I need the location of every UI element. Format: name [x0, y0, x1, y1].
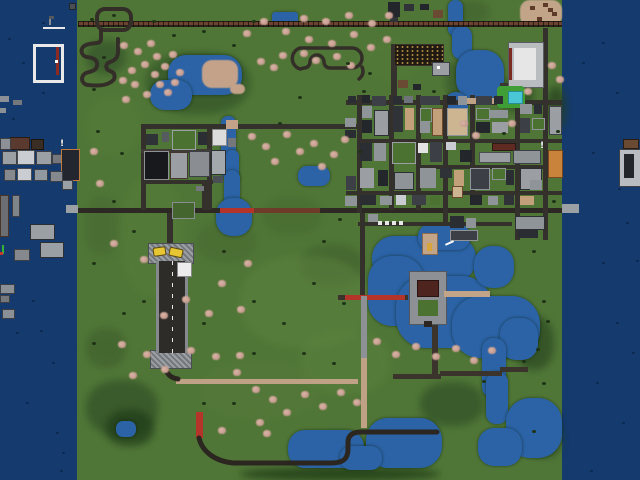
tree [283, 131, 291, 138]
white-line-marker [43, 27, 65, 29]
building [346, 176, 356, 190]
ocean-speck [26, 402, 29, 404]
dock-red-trim [56, 47, 59, 75]
road-segment [500, 83, 544, 87]
building [476, 96, 492, 105]
building [520, 104, 532, 114]
building [454, 170, 464, 186]
road-segment [462, 98, 496, 104]
road-segment [443, 95, 448, 223]
building [394, 172, 414, 190]
terrain-shade [360, 40, 420, 80]
terrain-shade [146, 52, 250, 114]
building [549, 106, 562, 135]
ocean-speck [60, 470, 63, 472]
building [372, 96, 386, 106]
bush [232, 402, 236, 405]
ocean-speck [8, 38, 11, 40]
gold-statue [427, 243, 432, 251]
bush [232, 44, 236, 47]
castle-pier [444, 291, 490, 297]
terrain-shade [450, 0, 490, 24]
road-segment [141, 180, 213, 184]
tree [218, 280, 226, 287]
tree [392, 351, 400, 358]
large-white-building [508, 42, 544, 88]
bush [482, 380, 486, 383]
building [172, 202, 195, 219]
tree [452, 345, 460, 352]
ship [62, 180, 73, 190]
building [362, 120, 372, 133]
terrain-shade [498, 78, 534, 112]
tree [176, 69, 184, 76]
airport-runway [156, 261, 188, 353]
lake [168, 55, 242, 95]
lake [226, 150, 239, 184]
road-segment [562, 204, 579, 213]
ship [50, 171, 63, 182]
parking-square [392, 221, 396, 225]
ship [14, 249, 30, 261]
terrain-shade [120, 176, 184, 296]
building [360, 195, 376, 205]
lake [456, 50, 504, 100]
building [432, 62, 450, 76]
road-segment [543, 101, 548, 240]
terrain-shade [200, 360, 320, 420]
ocean-speck [42, 22, 45, 24]
race-track-road [292, 48, 362, 69]
exclamation-marker: ! [540, 142, 544, 150]
building [418, 143, 428, 153]
ocean-speck [56, 432, 59, 434]
bush [338, 218, 342, 221]
tree [161, 366, 169, 373]
bush [298, 96, 302, 99]
bush [556, 130, 560, 133]
bush [542, 382, 546, 385]
castle-wall [409, 271, 447, 325]
road-segment [543, 28, 548, 102]
tree [548, 62, 556, 69]
lake [448, 0, 463, 36]
tree [131, 81, 139, 88]
bush [532, 430, 536, 433]
tree [305, 36, 313, 43]
map-canvas[interactable]: !! [0, 0, 640, 480]
building [368, 214, 378, 222]
tree [524, 88, 532, 95]
terrain-shade [240, 468, 440, 480]
building [348, 96, 356, 103]
building [393, 96, 402, 104]
lake [221, 116, 236, 178]
marker-layer: !! [0, 0, 640, 480]
tree [269, 396, 277, 403]
ruin-spot [552, 12, 557, 16]
ship [17, 168, 32, 181]
road-layer [0, 0, 640, 480]
bush [536, 348, 540, 351]
building [420, 122, 430, 133]
ship [0, 284, 15, 294]
ship [36, 151, 52, 165]
ship [34, 169, 48, 181]
building [447, 108, 468, 136]
lake [116, 421, 136, 437]
ship [619, 149, 640, 187]
bush [368, 72, 372, 75]
building [466, 218, 476, 228]
tree [110, 240, 118, 247]
terrain-shade [514, 316, 554, 370]
terrain-shade [528, 418, 562, 458]
airplane-icon [168, 247, 184, 259]
building [404, 96, 413, 103]
ocean-speck [592, 152, 595, 154]
ship [4, 169, 16, 181]
building [476, 122, 490, 133]
building [378, 170, 388, 186]
rail-depot-building [390, 17, 398, 22]
race-track-road [165, 366, 178, 379]
terrain-shade [420, 382, 484, 426]
castle-courtyard [417, 299, 439, 317]
race-track-road [199, 432, 437, 463]
building [211, 150, 226, 175]
building [520, 118, 530, 133]
building [506, 170, 514, 185]
road-segment [391, 44, 397, 102]
exclamation-marker: ! [60, 140, 64, 148]
bush [92, 342, 96, 345]
building [548, 150, 563, 178]
bush [142, 300, 146, 303]
island [202, 60, 238, 88]
terrain-shade [196, 222, 256, 262]
ocean-speck [602, 262, 605, 264]
road-segment [346, 191, 562, 195]
flag-marker [49, 16, 54, 19]
terrain-shade [86, 328, 126, 368]
ruin-spot [548, 8, 553, 12]
ship [52, 154, 62, 164]
tree [300, 50, 308, 57]
building [212, 129, 227, 146]
tree [151, 71, 159, 78]
terrain-shade [86, 40, 126, 74]
bush [282, 322, 286, 325]
road-segment [78, 208, 562, 213]
tree [368, 20, 376, 27]
airport-apron [150, 350, 192, 369]
building [520, 196, 534, 205]
building [440, 168, 452, 178]
tree [300, 15, 308, 22]
building [396, 195, 406, 205]
road-segment [202, 184, 207, 210]
tree [212, 353, 220, 360]
tree [147, 40, 155, 47]
building [532, 118, 545, 130]
building [345, 130, 356, 138]
lake [216, 198, 252, 236]
ocean-speck [52, 362, 55, 364]
tree [218, 427, 226, 434]
ocean-speck [62, 452, 65, 454]
building [534, 104, 542, 114]
road-segment [389, 95, 394, 210]
tree [312, 57, 320, 64]
building [172, 130, 196, 150]
building [450, 230, 478, 241]
tree [122, 96, 130, 103]
ocean-speck [40, 330, 43, 332]
bush [342, 302, 346, 305]
tree [412, 343, 420, 350]
road-segment [141, 124, 146, 210]
lake [452, 26, 472, 60]
lake [486, 372, 508, 424]
road-segment [176, 379, 358, 384]
tree [460, 120, 468, 127]
ocean-speck [616, 92, 619, 94]
road-segment [416, 95, 421, 210]
building [479, 152, 511, 163]
ship [624, 154, 634, 178]
tree [182, 296, 190, 303]
road-segment [358, 222, 512, 226]
swimming-pool [508, 91, 523, 104]
tree [156, 81, 164, 88]
landmass [77, 0, 562, 480]
road-segment [361, 358, 367, 428]
building [458, 96, 467, 105]
bush [92, 88, 96, 91]
tree [257, 58, 265, 65]
lake [506, 398, 562, 458]
building [413, 84, 421, 90]
ship [61, 149, 80, 181]
tree [248, 133, 256, 140]
tree [373, 338, 381, 345]
tree [260, 18, 268, 25]
building [213, 176, 223, 183]
building [374, 143, 386, 161]
bush [120, 152, 124, 155]
lake [224, 170, 240, 210]
bush [102, 56, 106, 59]
tree [385, 12, 393, 19]
player-dash-marker [445, 240, 454, 246]
lake [500, 318, 538, 360]
terrain-shade [300, 436, 370, 466]
ship [10, 137, 30, 150]
bush [132, 230, 136, 233]
tree [279, 52, 287, 59]
building [393, 106, 403, 132]
lake [366, 418, 442, 468]
tree [367, 44, 375, 51]
bush [302, 352, 306, 355]
bush [358, 150, 362, 153]
ocean-speck [582, 62, 585, 64]
ruin-spot [530, 6, 535, 10]
building [198, 132, 207, 145]
road-segment [361, 296, 367, 360]
island [230, 84, 245, 94]
terrain-shade [546, 86, 566, 130]
tree [120, 42, 128, 49]
buoy-red-marker [0, 252, 3, 255]
tree [472, 132, 480, 139]
tree [90, 148, 98, 155]
tree [270, 64, 278, 71]
lake [368, 256, 424, 326]
building [494, 96, 503, 104]
tree [237, 306, 245, 313]
tree [141, 61, 149, 68]
tree [256, 419, 264, 426]
tree [243, 30, 251, 37]
ocean-speck [602, 42, 605, 44]
road-segment [254, 208, 320, 213]
lake [482, 338, 506, 398]
ship [0, 195, 9, 237]
tree [271, 158, 279, 165]
lake [372, 236, 476, 282]
tree [322, 18, 330, 25]
tree [556, 76, 564, 83]
bush [278, 122, 282, 125]
tree [282, 28, 290, 35]
bush [332, 362, 336, 365]
bush [432, 90, 436, 93]
tree [236, 352, 244, 359]
ruin-spot [543, 3, 548, 7]
bush [172, 34, 176, 37]
bush [222, 250, 226, 253]
bush [362, 90, 366, 93]
lake [272, 12, 298, 23]
building [362, 106, 372, 118]
building [470, 168, 490, 190]
ocean-speck [626, 222, 629, 224]
ship [30, 224, 55, 240]
bush [542, 300, 546, 303]
ocean-speck [32, 300, 35, 302]
building [446, 142, 456, 150]
building [447, 96, 456, 104]
building [380, 196, 392, 205]
ocean-speck [590, 470, 593, 472]
road-segment [393, 374, 441, 379]
terrain-shade [86, 96, 142, 156]
lake [474, 246, 514, 288]
tree [345, 12, 353, 19]
ship [0, 96, 9, 102]
road-segment [338, 295, 408, 300]
road-segment [418, 165, 562, 169]
white-dot [55, 60, 58, 63]
ship [0, 138, 11, 150]
lake [444, 92, 468, 122]
ship [0, 108, 6, 113]
road-segment [66, 205, 78, 213]
runway-centerline [172, 261, 173, 353]
road-segment [444, 291, 490, 297]
building [170, 152, 188, 179]
ocean-speck [636, 260, 639, 262]
building [492, 122, 508, 133]
water-layer [0, 0, 640, 480]
road-segment [358, 139, 562, 143]
tree [296, 148, 304, 155]
ship [2, 151, 17, 165]
road-segment [346, 100, 562, 105]
railroad [78, 21, 562, 27]
building [504, 195, 514, 205]
building [360, 168, 374, 188]
building [513, 150, 541, 164]
rail-depot-building [420, 4, 429, 10]
road-segment [196, 412, 203, 438]
building [405, 108, 414, 130]
road-segment [500, 367, 528, 372]
lake [478, 428, 522, 466]
land-layer [0, 0, 640, 480]
building [530, 180, 542, 190]
building [362, 95, 370, 103]
tree [134, 48, 142, 55]
bush [252, 352, 256, 355]
bush [92, 262, 96, 265]
road-segment [360, 213, 365, 297]
castle-gate [424, 321, 432, 327]
airport-apron [148, 243, 194, 264]
tree [244, 260, 252, 267]
ship [623, 139, 639, 149]
lake [340, 446, 382, 470]
road-segment [207, 124, 212, 210]
tree [333, 53, 341, 60]
lake [452, 296, 540, 358]
bush [202, 402, 206, 405]
terrain-shade [84, 196, 120, 256]
tree [310, 140, 318, 147]
bush [312, 282, 316, 285]
bush [90, 18, 94, 21]
flag-marker [49, 16, 51, 25]
tree [341, 136, 349, 143]
ocean-speck [22, 62, 25, 64]
building [196, 186, 204, 191]
road-segment [440, 371, 502, 376]
building [520, 168, 542, 190]
tree [337, 389, 345, 396]
building [492, 143, 516, 151]
race-track-road [359, 67, 363, 79]
tree [350, 31, 358, 38]
road-segment [357, 95, 362, 213]
building [374, 110, 389, 136]
tree [233, 369, 241, 376]
ocean-speck [632, 352, 635, 354]
building [420, 168, 436, 188]
tree [205, 310, 213, 317]
bush [96, 130, 100, 133]
